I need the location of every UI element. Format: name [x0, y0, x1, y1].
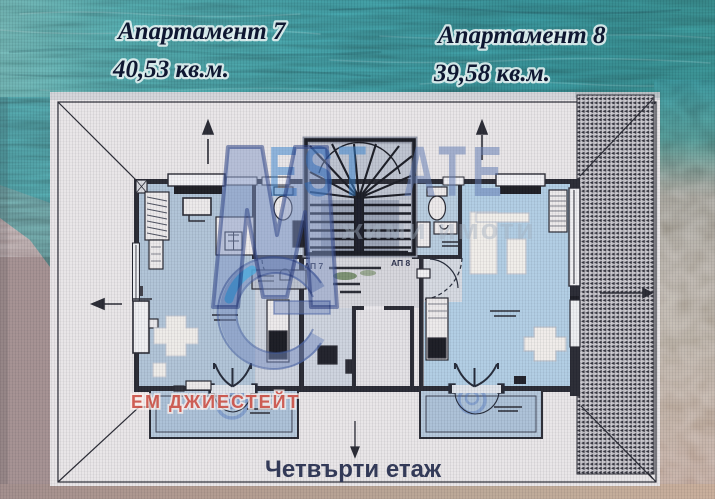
svg-text:Апартамент 8: Апартамент 8 — [436, 22, 606, 49]
svg-text:EST: EST — [268, 132, 371, 212]
svg-text:ЕМ ДЖИЕСТЕЙТ: ЕМ ДЖИЕСТЕЙТ — [131, 391, 301, 412]
svg-text:39,58 кв.м.: 39,58 кв.м. — [433, 60, 550, 87]
svg-text:Четвърти етаж: Четвърти етаж — [265, 456, 442, 483]
svg-text:жими имоти: жими имоти — [341, 214, 536, 246]
svg-text:ATE: ATE — [403, 132, 508, 212]
svg-text:40,53 кв.м.: 40,53 кв.м. — [112, 56, 229, 83]
svg-text:Апартамент 7: Апартамент 7 — [116, 18, 287, 45]
